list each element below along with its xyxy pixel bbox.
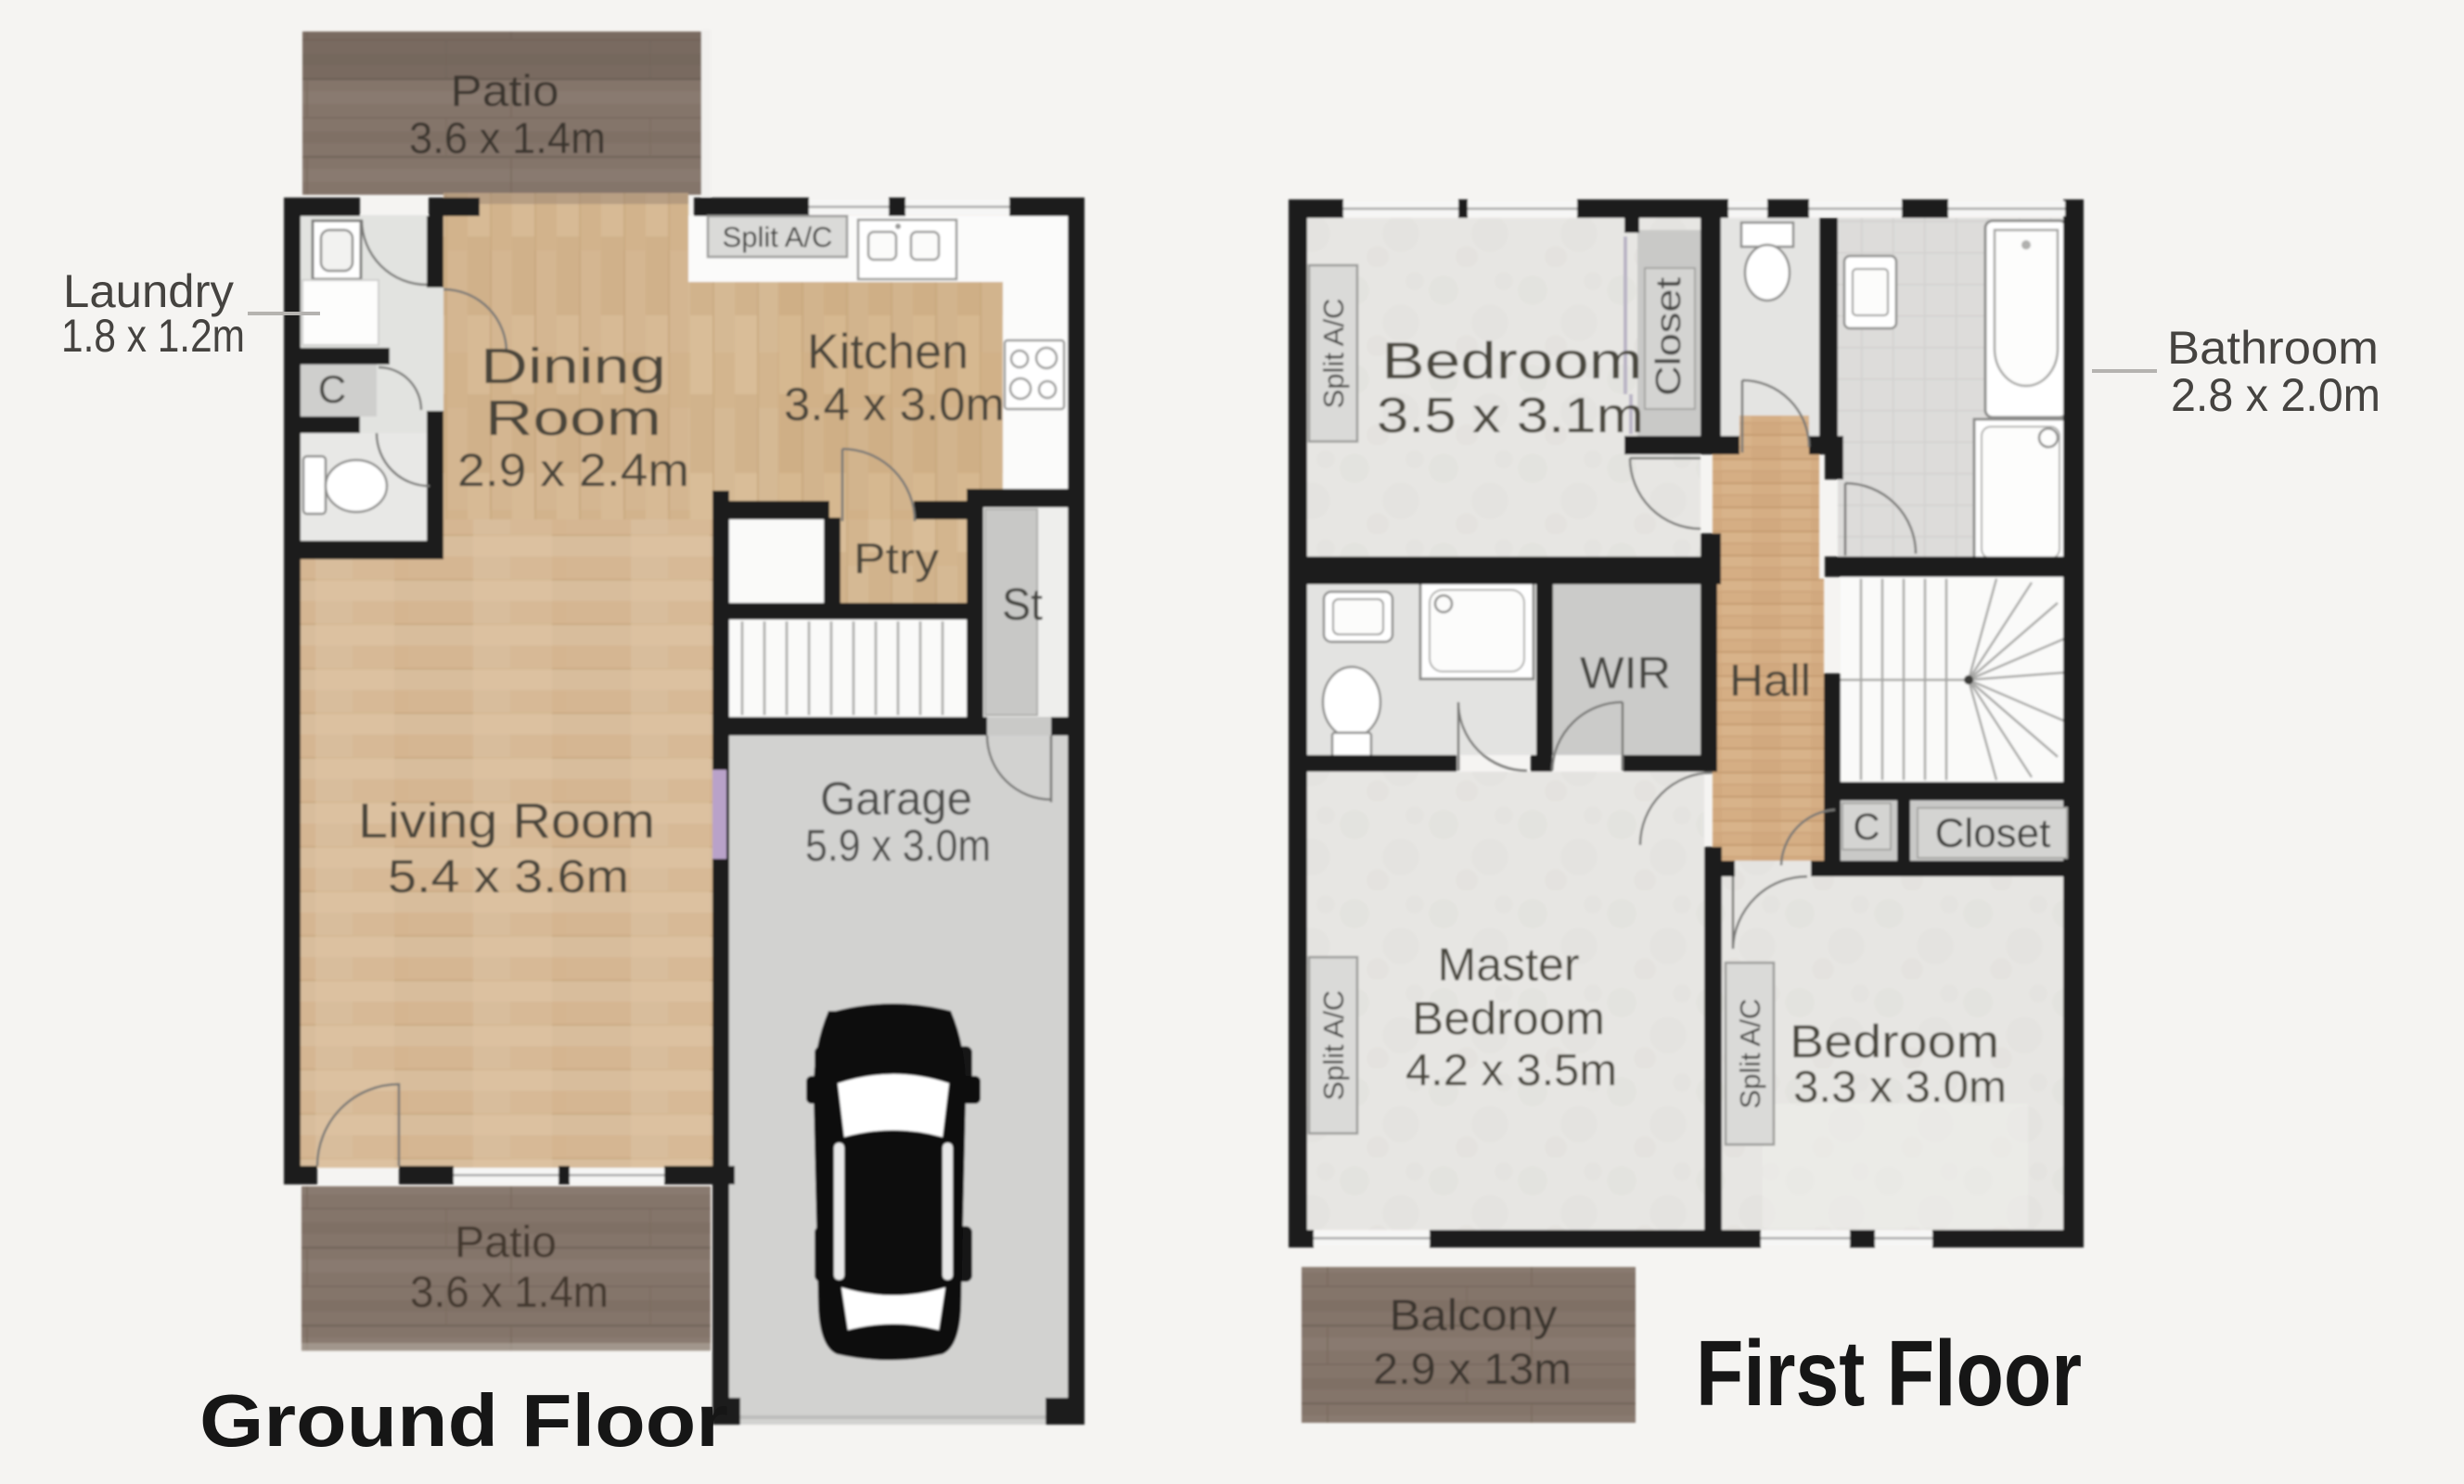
svg-text:3.6 x 1.4m: 3.6 x 1.4m: [409, 113, 606, 162]
svg-text:Split A/C: Split A/C: [1734, 999, 1766, 1109]
svg-text:Bedroom: Bedroom: [1382, 331, 1643, 390]
svg-text:St: St: [1002, 581, 1043, 630]
svg-text:3.4 x 3.0m: 3.4 x 3.0m: [784, 378, 1005, 430]
svg-text:First Floor: First Floor: [1696, 1322, 2082, 1426]
svg-text:Closet: Closet: [1935, 811, 2051, 856]
svg-text:3.5 x 3.1m: 3.5 x 3.1m: [1377, 388, 1644, 443]
svg-text:Patio: Patio: [455, 1217, 557, 1266]
svg-text:2.8 x 2.0m: 2.8 x 2.0m: [2171, 369, 2381, 421]
svg-text:Closet: Closet: [1649, 276, 1688, 396]
svg-text:Balcony: Balcony: [1390, 1290, 1559, 1339]
svg-text:Living Room: Living Room: [358, 794, 655, 849]
svg-text:2.9 x 2.4m: 2.9 x 2.4m: [457, 444, 689, 496]
svg-text:C: C: [1854, 807, 1880, 848]
svg-text:2.9 x 13m: 2.9 x 13m: [1373, 1344, 1572, 1393]
svg-text:Bedroom: Bedroom: [1412, 992, 1605, 1044]
svg-text:5.4 x 3.6m: 5.4 x 3.6m: [388, 851, 629, 902]
svg-text:WIR: WIR: [1580, 649, 1671, 698]
svg-text:3.6 x 1.4m: 3.6 x 1.4m: [410, 1267, 609, 1316]
svg-text:Master: Master: [1438, 939, 1580, 991]
svg-text:Kitchen: Kitchen: [807, 325, 969, 379]
svg-text:Room: Room: [485, 390, 661, 446]
svg-text:Split A/C: Split A/C: [723, 221, 833, 253]
svg-text:Bathroom: Bathroom: [2167, 322, 2379, 374]
svg-text:Split A/C: Split A/C: [1317, 991, 1350, 1101]
svg-text:1.8 x 1.2m: 1.8 x 1.2m: [61, 310, 245, 362]
svg-text:Ground Floor: Ground Floor: [199, 1379, 728, 1462]
svg-text:4.2 x 3.5m: 4.2 x 3.5m: [1405, 1046, 1617, 1095]
svg-text:5.9 x 3.0m: 5.9 x 3.0m: [805, 822, 991, 871]
svg-text:3.3 x 3.0m: 3.3 x 3.0m: [1793, 1063, 2007, 1112]
svg-text:Dining: Dining: [481, 339, 666, 394]
svg-text:Hall: Hall: [1729, 657, 1811, 706]
svg-text:Ptry: Ptry: [853, 534, 939, 582]
svg-text:Patio: Patio: [451, 66, 559, 115]
svg-text:Garage: Garage: [820, 773, 972, 825]
svg-text:C: C: [318, 367, 346, 411]
svg-text:Split A/C: Split A/C: [1317, 299, 1350, 409]
svg-text:Bedroom: Bedroom: [1790, 1016, 1999, 1068]
